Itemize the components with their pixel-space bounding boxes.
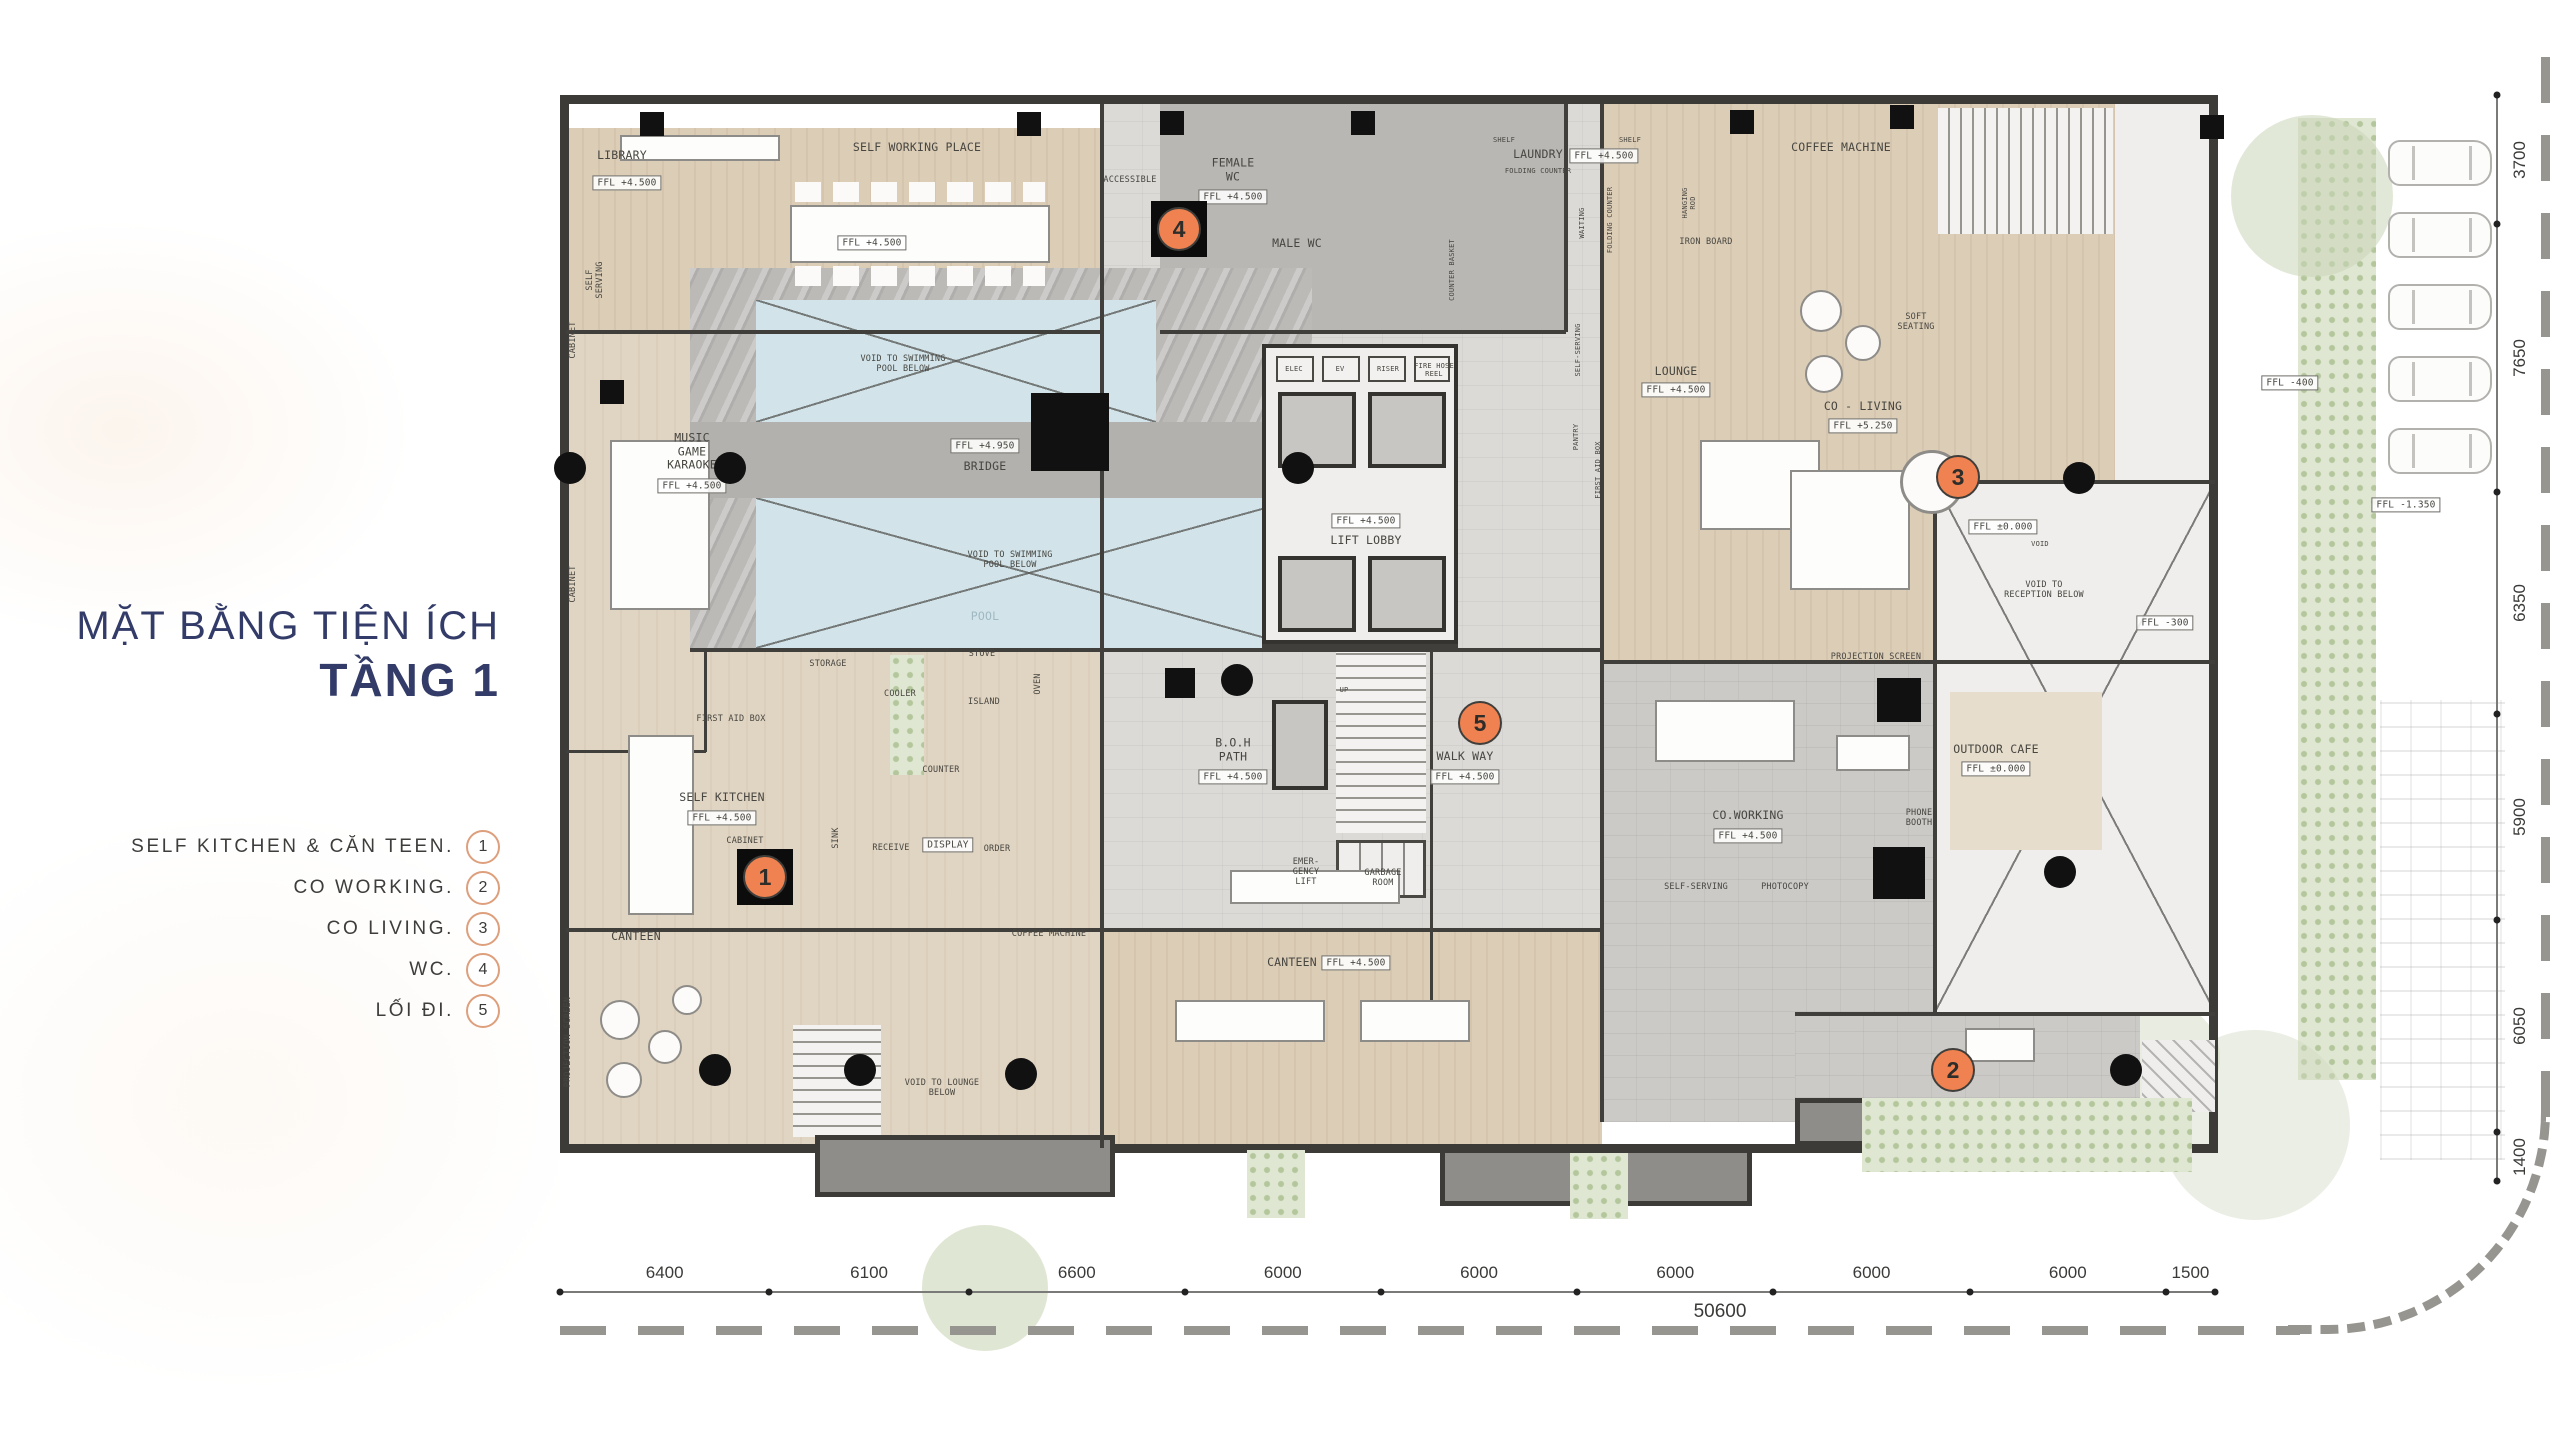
- room-label: SOFT SEATING: [1897, 312, 1934, 332]
- pouf: [1805, 355, 1843, 393]
- table: [1836, 735, 1910, 771]
- terrace-bay: [815, 1135, 1115, 1197]
- plan-marker-5: 5: [1458, 701, 1502, 745]
- room-label: STOVE: [969, 649, 996, 659]
- room-label: GARBAGE ROOM: [1364, 868, 1401, 888]
- room-label: FFL +4.500: [1430, 769, 1499, 784]
- tree: [2231, 115, 2393, 277]
- room-label: FFL ±0.000: [1961, 761, 2030, 776]
- room-label: FFL +4.500: [1569, 148, 1638, 163]
- dimension-value: 1500: [2172, 1263, 2210, 1283]
- table: [790, 205, 1050, 263]
- room-label: SELF-SERVING: [1664, 882, 1728, 892]
- dimension-value: 6600: [1058, 1263, 1096, 1283]
- room-label: OUTDOOR CAFE: [1953, 743, 2038, 757]
- room-label: FFL +4.500: [1198, 189, 1267, 204]
- structural-column: [699, 1054, 731, 1086]
- parked-car: [2388, 284, 2492, 330]
- dimension-value: 6000: [1460, 1263, 1498, 1283]
- planter: [890, 655, 924, 775]
- dimension-line: [2496, 95, 2498, 1181]
- dimension-tick: [2162, 1289, 2169, 1296]
- room-label: BRIDGE: [964, 460, 1007, 474]
- parked-car: [2388, 212, 2492, 258]
- structural-column: [2200, 115, 2224, 139]
- room-label: SELF KITCHEN: [679, 791, 764, 805]
- room-label: FIRST AID BOX: [1594, 441, 1602, 498]
- structural-column: [2044, 856, 2076, 888]
- room-label: COOLER: [884, 689, 916, 699]
- room-label: MALE WC: [1272, 237, 1322, 251]
- room-label: SELF WORKING PLACE: [853, 141, 981, 155]
- parked-car: [2388, 356, 2492, 402]
- structural-column: [2063, 462, 2095, 494]
- room-label: COFFEE MACHINE: [1012, 929, 1086, 939]
- pouf: [600, 1000, 640, 1040]
- room-label: FFL +4.500: [1331, 513, 1400, 528]
- pouf: [1845, 325, 1881, 361]
- structural-column: [1160, 111, 1184, 135]
- room-label: PANTRY: [1572, 424, 1580, 451]
- dimension-value: 6000: [1656, 1263, 1694, 1283]
- parked-car: [2388, 140, 2492, 186]
- dimension-tick: [1181, 1289, 1188, 1296]
- structural-column: [1165, 668, 1195, 698]
- chairs: [795, 182, 1045, 202]
- structural-column: [844, 1054, 876, 1086]
- pouf: [648, 1030, 682, 1064]
- room-label: CANTEEN: [1267, 956, 1317, 970]
- room-label: FFL -300: [2136, 615, 2193, 630]
- table: [1655, 700, 1795, 762]
- dimension-tick: [1770, 1289, 1777, 1296]
- plan-marker-3: 3: [1936, 455, 1980, 499]
- room-label: RISER: [1377, 365, 1399, 373]
- room-label: PHONE BOOTH: [1906, 808, 1933, 828]
- motorbike-parking: [2380, 700, 2505, 1160]
- wall: [1795, 1012, 2215, 1016]
- room-label: CO - LIVING: [1824, 400, 1902, 414]
- room-label: RECEIVE: [872, 843, 909, 853]
- room-label: FFL +4.500: [1713, 828, 1782, 843]
- pouf: [606, 1062, 642, 1098]
- dimension-tick: [1966, 1289, 1973, 1296]
- room-label: WALK WAY: [1437, 750, 1494, 764]
- dimension-tick: [965, 1289, 972, 1296]
- room-label: DISPLAY: [922, 837, 973, 852]
- room-label: VOID TO RECEPTION BELOW: [2004, 580, 2084, 600]
- room-label: FFL +4.500: [592, 175, 661, 190]
- dimension-tick: [1574, 1289, 1581, 1296]
- dimension-value: 5900: [2510, 798, 2530, 836]
- dimension-value: 1400: [2510, 1138, 2530, 1176]
- property-line-bottom: [560, 1326, 2300, 1335]
- room-label: FFL +4.950: [950, 438, 1019, 453]
- wall: [1564, 104, 1568, 332]
- structural-column: [1005, 1058, 1037, 1090]
- dimension-value: 7650: [2510, 339, 2530, 377]
- room-label: MUSIC GAME KARAOKE: [667, 432, 717, 473]
- room-label: FFL ±0.000: [1968, 519, 2037, 534]
- dimension-value: 6000: [1264, 1263, 1302, 1283]
- wall: [1262, 644, 1458, 648]
- structural-column: [600, 380, 624, 404]
- dimension-tick: [2494, 917, 2501, 924]
- room-label: ACCESSIBLE: [1103, 175, 1156, 185]
- room-label: VOID TO SWIMMING POOL BELOW: [967, 550, 1052, 570]
- dimension-tick: [2494, 488, 2501, 495]
- parked-car: [2388, 428, 2492, 474]
- wall: [690, 648, 1602, 652]
- planter: [1862, 1098, 2192, 1172]
- dimension-tick: [2494, 92, 2501, 99]
- pouf: [672, 985, 702, 1015]
- wall: [1933, 482, 1937, 1014]
- room-label: COFFEE MACHINE: [1791, 141, 1891, 155]
- dimension-tick: [2494, 221, 2501, 228]
- wall: [1430, 648, 1433, 1012]
- chairs: [795, 266, 1045, 286]
- dimension-tick: [1377, 1289, 1384, 1296]
- wall: [1160, 330, 1566, 334]
- room-label: SELF SERVING: [585, 261, 605, 298]
- room-label: PROJECTION SCREEN: [563, 997, 573, 1087]
- room-label: LIFT LOBBY: [1330, 534, 1401, 548]
- table: [1965, 1028, 2035, 1062]
- structural-column: [1351, 111, 1375, 135]
- room-label: VOID TO LOUNGE BELOW: [905, 1078, 979, 1098]
- structural-column: [1890, 105, 1914, 129]
- room-label: FFL +5.250: [1828, 418, 1897, 433]
- dimension-value: 6400: [646, 1263, 684, 1283]
- room-label: SINK: [831, 827, 841, 848]
- dimension-value: 6350: [2510, 584, 2530, 622]
- floor-plan: 50600 LIBRARYFFL +4.500SELF WORKING PLAC…: [0, 0, 2560, 1440]
- room-label: VOID TO SWIMMING POOL BELOW: [860, 354, 945, 374]
- room-label: VOID: [2031, 540, 2049, 548]
- room-label: EV: [1336, 365, 1345, 373]
- plan-marker-4: 4: [1157, 207, 1201, 251]
- room-label: CO.WORKING: [1712, 809, 1783, 823]
- planter: [1247, 1150, 1305, 1218]
- dimension-tick: [2212, 1289, 2219, 1296]
- structural-column: [1031, 393, 1109, 471]
- structural-column: [1730, 110, 1754, 134]
- room-label: FFL +4.500: [1321, 955, 1390, 970]
- room-label: CANTEEN: [611, 930, 661, 944]
- room-label: FFL +4.500: [1198, 769, 1267, 784]
- room-label: SHELF: [1493, 136, 1515, 144]
- table: [1175, 1000, 1325, 1042]
- room-label: HANGING ROD: [1681, 188, 1698, 219]
- room-label: STORAGE: [809, 659, 846, 669]
- dimension-tick: [766, 1289, 773, 1296]
- room-label: CABINET: [726, 836, 763, 846]
- room-label: FFL -1.350: [2371, 497, 2440, 512]
- room-label: SHELF: [1619, 136, 1641, 144]
- room-label: ELEC: [1285, 365, 1303, 373]
- dimension-value: 6000: [2049, 1263, 2087, 1283]
- room-label: UP: [1340, 686, 1349, 694]
- dimension-value: 6000: [1853, 1263, 1891, 1283]
- room-label: LAUNDRY: [1513, 148, 1563, 162]
- structural-column: [1282, 452, 1314, 484]
- pouf: [1800, 290, 1842, 332]
- room-label: COUNTER: [922, 765, 959, 775]
- plan-marker-2: 2: [1931, 1048, 1975, 1092]
- structural-column: [640, 112, 664, 136]
- room-label: COUNTER BASKET: [1448, 239, 1456, 301]
- room-label: LIBRARY: [597, 149, 647, 163]
- room-label: B.O.H PATH: [1215, 736, 1251, 763]
- property-line-right: [2541, 55, 2550, 1117]
- table: [1360, 1000, 1470, 1042]
- room-label: EMER- GENCY LIFT: [1293, 857, 1320, 887]
- structural-column: [2110, 1054, 2142, 1086]
- wall: [1600, 104, 1604, 1122]
- room-label: ORDER: [984, 844, 1011, 854]
- room-label: PHOTOCOPY: [1761, 882, 1809, 892]
- dimension-value: 6050: [2510, 1007, 2530, 1045]
- room-label: FFL -400: [2261, 375, 2318, 390]
- room-label: ISLAND: [968, 697, 1000, 707]
- wall: [1100, 104, 1104, 1148]
- room-label: FEMALE WC: [1212, 156, 1255, 183]
- room-label: FFL +4.500: [687, 810, 756, 825]
- dimension-value: 3700: [2510, 141, 2530, 179]
- wall: [566, 330, 1102, 334]
- dimension-tick: [557, 1289, 564, 1296]
- table: [628, 735, 694, 915]
- room-label: FFL +4.500: [657, 478, 726, 493]
- room-label: FFL +4.500: [1641, 382, 1710, 397]
- structural-column: [1873, 847, 1925, 899]
- room-label: OVEN: [1033, 673, 1043, 694]
- dimension-value: 6100: [850, 1263, 888, 1283]
- wall: [704, 652, 707, 752]
- room-label: FIRST AID BOX: [696, 714, 765, 724]
- room-label: CABINET: [568, 321, 578, 358]
- room-label: CABINET: [568, 565, 578, 602]
- room-label: POOL: [971, 610, 1000, 624]
- dimension-tick: [2494, 1129, 2501, 1136]
- room-label: IRON BOARD: [1679, 237, 1732, 247]
- room-label: SELF-SERVING: [1574, 324, 1582, 377]
- structural-column: [1877, 678, 1921, 722]
- planter: [1570, 1153, 1628, 1219]
- dimension-tick: [2494, 1178, 2501, 1185]
- room-label: FFL +4.500: [837, 235, 906, 250]
- projection-table: [1790, 470, 1910, 590]
- structural-column: [1017, 112, 1041, 136]
- room-label: LOUNGE: [1655, 365, 1698, 379]
- structural-column: [554, 452, 586, 484]
- room-label: FOLDING COUNTER: [1505, 167, 1571, 175]
- structural-column: [714, 452, 746, 484]
- dimension-tick: [2494, 711, 2501, 718]
- room-label: FOLDING COUNTER: [1606, 187, 1614, 253]
- plan-marker-1: 1: [743, 855, 787, 899]
- structural-column: [1221, 664, 1253, 696]
- room-label: FIRE HOSE REEL: [1414, 362, 1454, 379]
- room-label: WAITING: [1578, 208, 1586, 239]
- room-label: PROJECTION SCREEN: [1831, 652, 1921, 662]
- dim-total: 50600: [1694, 1301, 1747, 1323]
